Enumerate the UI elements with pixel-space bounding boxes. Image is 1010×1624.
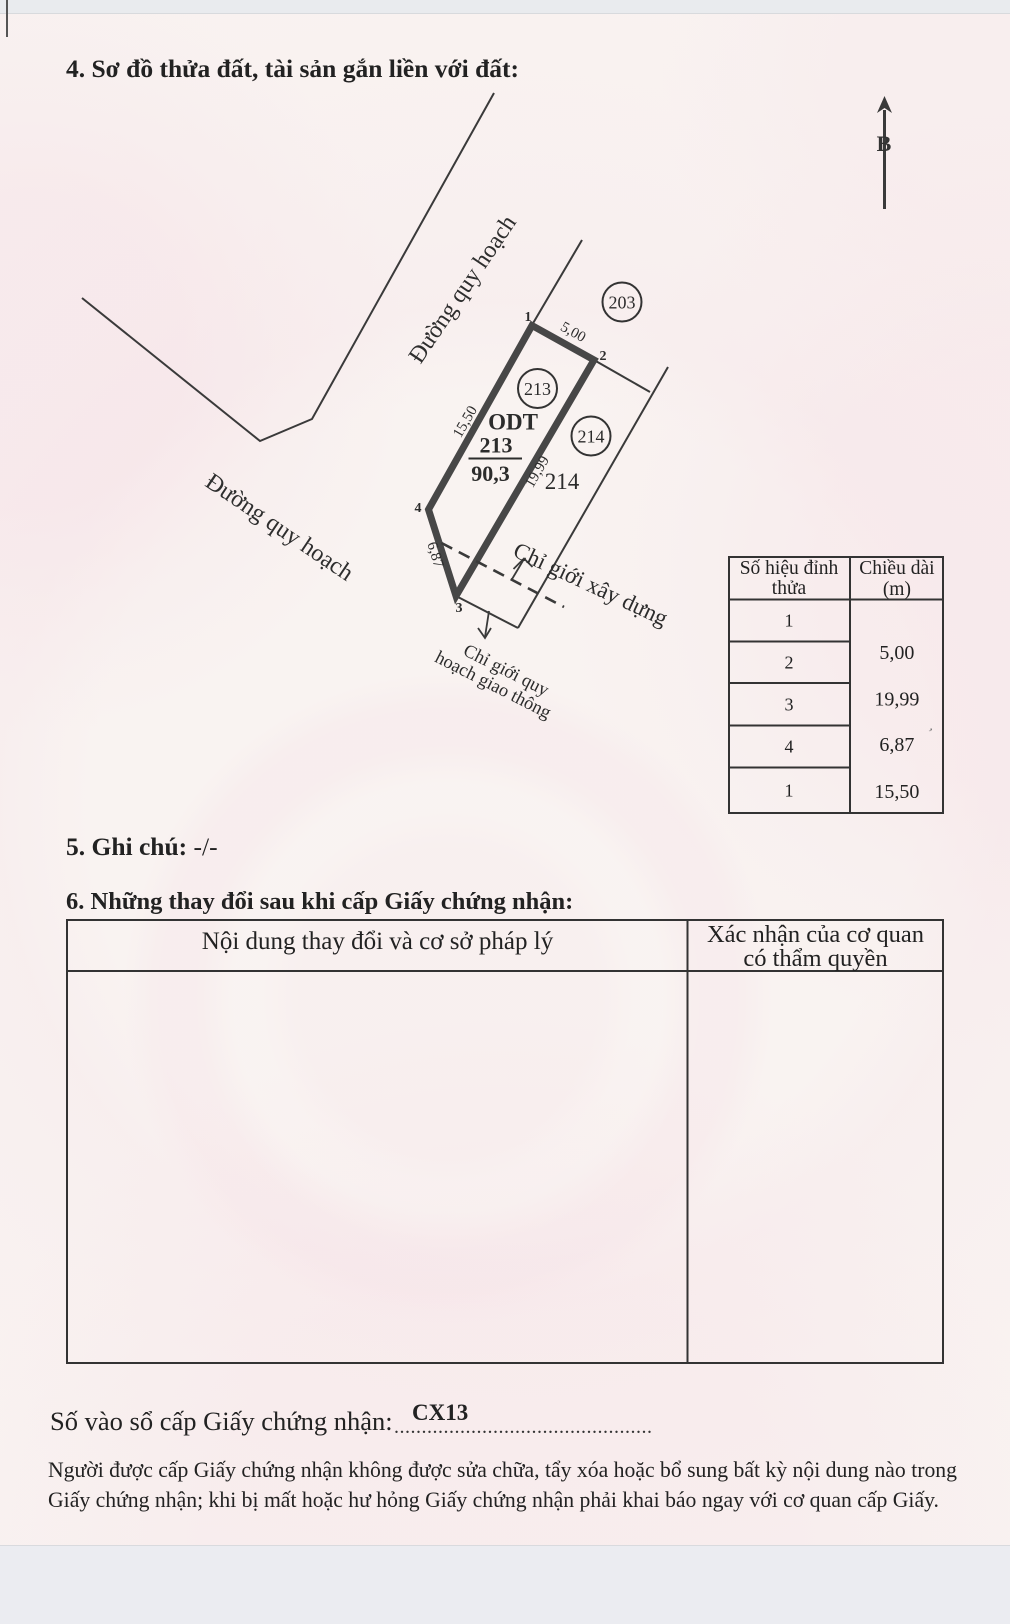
svg-text:15,50: 15,50 [874, 781, 919, 803]
svg-text:Đường quy hoạch: Đường quy hoạch [404, 211, 522, 368]
svg-text:214: 214 [578, 427, 605, 447]
svg-text:3: 3 [785, 695, 794, 715]
svg-text:ODT: ODT [488, 410, 538, 435]
svg-text:(m): (m) [883, 579, 911, 600]
svg-text:Số hiệu đỉnh: Số hiệu đỉnh [740, 558, 839, 579]
svg-text:thửa: thửa [772, 578, 807, 599]
svg-text:19,99: 19,99 [874, 689, 919, 711]
svg-text:1: 1 [785, 781, 794, 801]
svg-text:3: 3 [456, 601, 463, 616]
svg-text:1: 1 [525, 310, 532, 325]
svg-text:4: 4 [785, 737, 794, 757]
svg-text:213: 213 [524, 379, 551, 399]
svg-text:Nội dung thay đổi và cơ sở phá: Nội dung thay đổi và cơ sở pháp lý [202, 928, 554, 955]
svg-text:4: 4 [415, 501, 422, 516]
svg-text:Chỉ giới xây dựng: Chỉ giới xây dựng [510, 538, 672, 631]
svg-text:Xác nhận của cơ quan: Xác nhận của cơ quan [707, 921, 924, 948]
svg-text:5,00: 5,00 [879, 642, 914, 664]
svg-text:213: 213 [480, 433, 513, 458]
svg-text:203: 203 [609, 293, 636, 313]
svg-text:B: B [877, 131, 892, 156]
svg-text:214: 214 [545, 469, 580, 494]
svg-text:1: 1 [785, 611, 794, 631]
svg-text:2: 2 [600, 349, 607, 364]
svg-text:90,3: 90,3 [471, 461, 510, 486]
svg-text:Chiều dài: Chiều dài [859, 558, 935, 579]
svg-text:Đường quy hoạch: Đường quy hoạch [200, 469, 357, 587]
svg-text:6,87: 6,87 [879, 734, 914, 756]
svg-text:có thẩm quyền: có thẩm quyền [743, 945, 887, 972]
svg-text:2: 2 [785, 653, 794, 673]
